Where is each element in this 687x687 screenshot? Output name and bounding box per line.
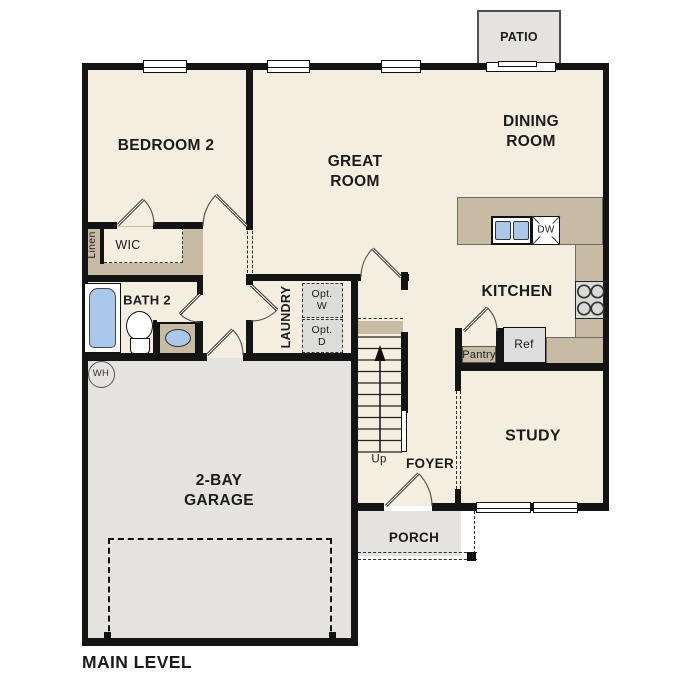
room-label-kitchen: KITCHEN [482,282,553,302]
wall-study-top [455,363,609,371]
wall-bath-hall-a [197,275,203,295]
room-label-study: STUDY [505,427,561,448]
wall-hall-laundry-b [246,320,253,356]
wall-stairs-right [401,332,408,413]
wall-stairs-right-stub [401,272,408,290]
wall-stairs-left [351,274,358,646]
wall-bath-top [82,275,203,282]
floor-plan: PATIO BEDROOM 2 GREAT ROOM DINING ROOM K… [0,0,687,687]
patio-sliding-panel [498,61,537,67]
annotation-washer: Opt. W [311,288,332,312]
room-label-dining-room: DINING ROOM [503,112,559,152]
window-bedroom [143,60,187,73]
wall-pantry-left [455,328,462,371]
garage-door-post-left [104,632,111,639]
window-greatroom-2 [381,60,421,73]
toilet-bowl [126,311,153,341]
annotation-pantry: Pantry [462,348,496,362]
porch-overhang-dash-2 [358,559,477,560]
room-label-linen: Linen [86,231,100,258]
wall-study-left-b [455,489,461,511]
wall-linen-divider [100,227,104,264]
opening-hall-greatroom-1 [247,231,248,273]
room-label-bath2: BATH 2 [123,293,171,310]
wall-bedroom-bottom-b [153,222,203,229]
room-label-porch: PORCH [389,529,439,547]
opening-foyer-study-2 [460,391,461,489]
stair-landing-shelf [358,321,403,334]
annotation-water-heater: WH [93,368,109,380]
room-label-foyer: FOYER [406,455,454,473]
wall-laundry-top [246,274,361,281]
stove [575,281,604,319]
garage-door-post-right [329,632,336,639]
vanity-sink [165,329,191,347]
window-greatroom-1 [267,60,310,73]
room-label-garage: 2-BAY GARAGE [184,471,254,511]
annotation-dryer: Opt. D [311,324,332,348]
wall-study-left-a [455,371,461,391]
annotation-stairs-up: Up [371,453,386,468]
kitchen-counter-bottom [546,337,603,363]
porch-overhang-dash-1 [358,552,477,553]
stair-railing [401,410,407,452]
kitchen-sink-basin-left [495,221,511,240]
porch-post [467,552,476,561]
wall-bedroom-right [246,63,253,230]
opening-foyer-study-1 [456,391,457,489]
window-study-1 [476,502,531,513]
room-label-great-room: GREAT ROOM [328,152,383,192]
kitchen-sink-basin-right [513,221,529,240]
room-label-bedroom2: BEDROOM 2 [118,136,215,156]
wall-bath-hall-b [197,321,203,356]
garage-door-outline [108,538,332,641]
room-label-laundry: LAUNDRY [278,286,294,349]
room-label-wic: WIC [115,237,140,253]
opening-hall-greatroom-2 [252,231,253,273]
toilet-tank [130,338,150,354]
wall-hall-laundry-a [246,274,253,285]
bathtub [89,288,116,348]
wall-pantry-right [496,328,503,363]
plan-title: MAIN LEVEL [82,651,192,674]
annotation-refrigerator: Ref [514,337,534,353]
window-study-2 [533,502,578,513]
wall-garage-top-b [243,353,357,361]
stair-landing-dash [358,318,403,319]
annotation-dishwasher: DW [536,224,555,237]
room-label-patio: PATIO [500,29,538,45]
